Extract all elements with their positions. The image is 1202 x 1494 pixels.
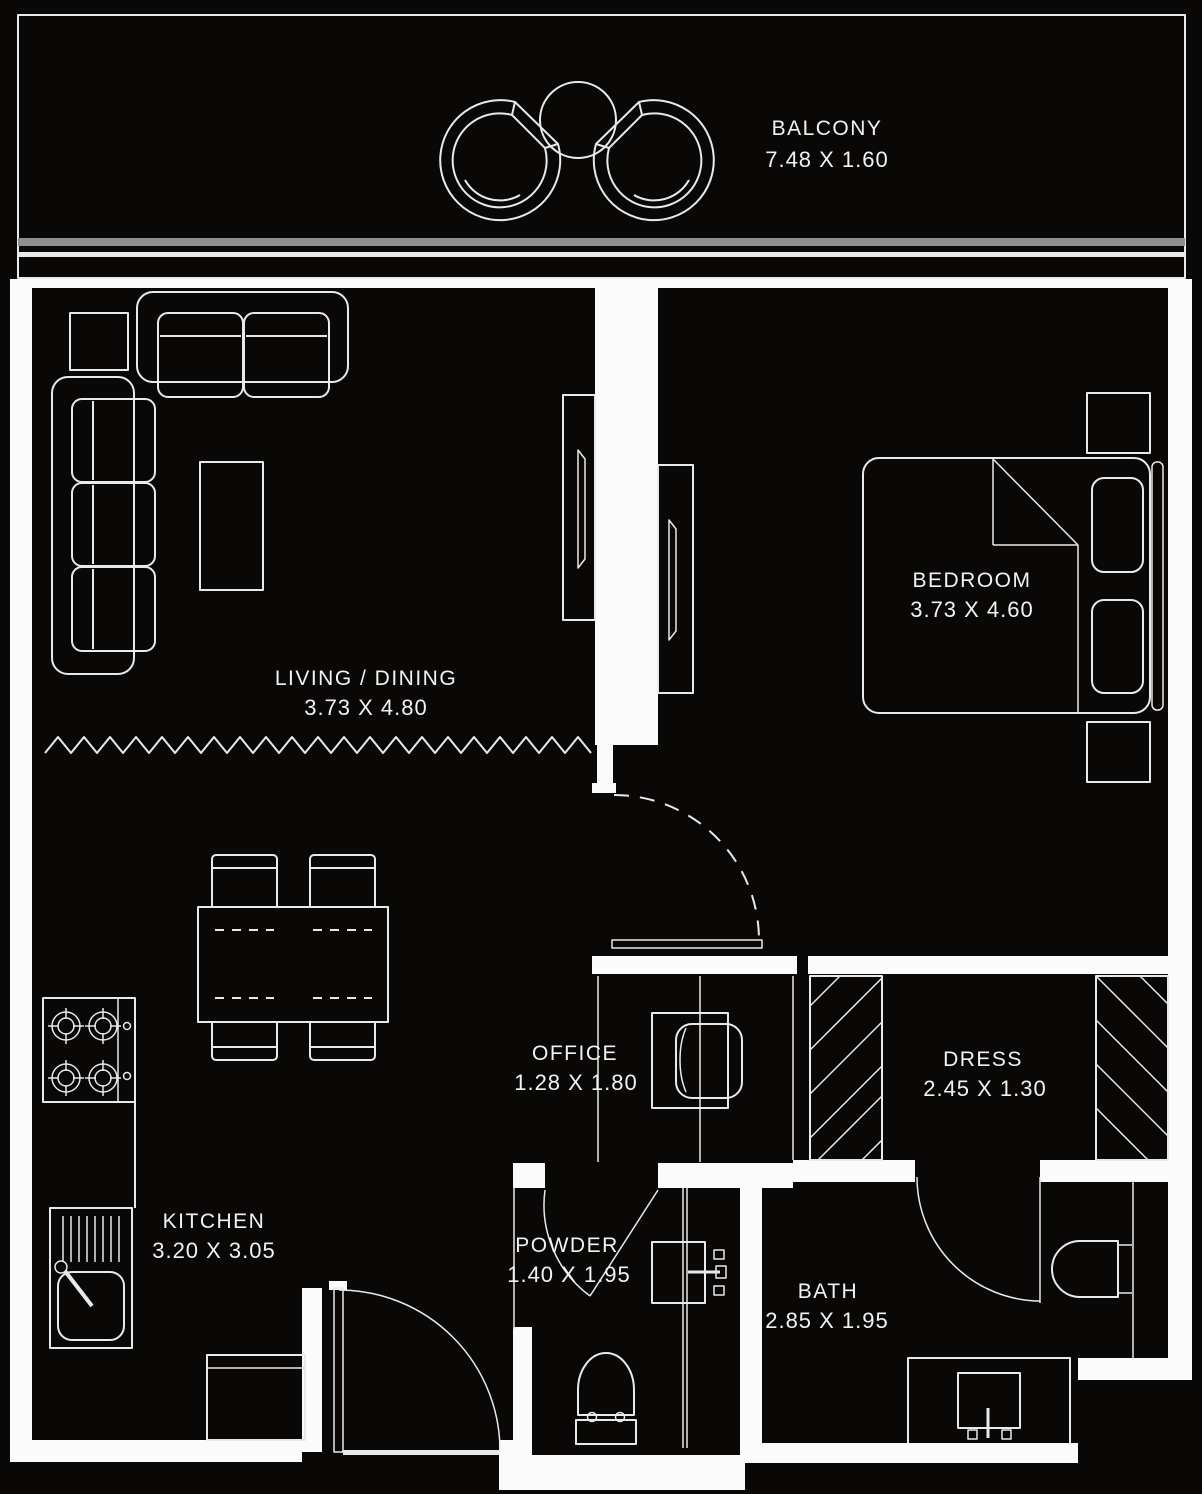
pillow-bottom	[1092, 600, 1143, 693]
coffee-table	[200, 462, 263, 590]
bath-dims: 2.85 X 1.95	[765, 1308, 889, 1333]
burner	[85, 1008, 121, 1044]
stove	[43, 998, 135, 1102]
floor-break-line	[45, 737, 591, 753]
balcony-dims: 7.48 X 1.60	[765, 147, 889, 172]
bath-toilet	[1052, 1241, 1132, 1297]
bath-bottom-wall	[740, 1443, 1078, 1463]
walls	[10, 279, 1192, 1490]
living-dims: 3.73 X 4.80	[304, 695, 428, 720]
balcony-sill-line	[18, 252, 1185, 257]
tv-living	[578, 450, 585, 568]
sofa-left-cushions	[72, 399, 155, 651]
office-dims: 1.28 X 1.80	[514, 1070, 638, 1095]
bedroom-door-jamb	[592, 783, 616, 793]
office-zone	[652, 1013, 742, 1108]
powder-top-wall-b	[658, 1163, 793, 1188]
faucet-lever	[65, 1271, 92, 1306]
wardrobe-left	[810, 976, 882, 1160]
bedroom-door-panel	[612, 940, 762, 948]
center-wall-stub	[597, 745, 613, 785]
side-table	[70, 313, 128, 370]
bath-door-swing	[917, 1177, 1040, 1301]
kitchen-sink	[50, 1208, 132, 1348]
bedroom-dims: 3.73 X 4.60	[910, 597, 1034, 622]
powder-washbasin	[652, 1242, 726, 1303]
powder-toilet	[576, 1353, 636, 1444]
kitchen-dims: 3.20 X 3.05	[152, 1238, 276, 1263]
balcony-label: BALCONY	[772, 117, 883, 140]
hall-top-wall-left	[592, 956, 797, 974]
fridge-cabinet	[207, 1355, 305, 1440]
powder-zone	[544, 1190, 726, 1444]
bath-left-wall	[740, 1188, 762, 1463]
dress-label: DRESS	[943, 1048, 1023, 1071]
pillow-top	[1092, 478, 1143, 572]
sofa-top-cushions	[158, 313, 329, 397]
floor-plan: BALCONY 7.48 X 1.60 LIVING / DINING 3.73…	[0, 0, 1202, 1494]
bath-label: BATH	[798, 1280, 858, 1303]
bedroom-door-swing	[614, 795, 759, 940]
burner	[48, 1008, 84, 1044]
powder-bottom-wall	[499, 1455, 745, 1490]
nightstand-bottom	[1087, 722, 1150, 782]
office-chair	[676, 1024, 742, 1098]
entrance-door-swing	[339, 1290, 500, 1452]
floor-plan-canvas: BALCONY 7.48 X 1.60 LIVING / DINING 3.73…	[0, 0, 1202, 1494]
headboard	[1152, 462, 1163, 710]
hall-top-wall-right	[808, 956, 1168, 974]
balcony-zone	[18, 15, 1185, 278]
right-wall	[1168, 279, 1192, 1380]
tv-unit-living	[563, 395, 595, 620]
center-wall	[595, 279, 658, 745]
drainboard	[63, 1216, 119, 1262]
bath-vanity	[908, 1358, 1070, 1443]
bath-door	[917, 1177, 1040, 1303]
entrance-door-leaf	[334, 1288, 343, 1452]
bedroom-label: BEDROOM	[912, 569, 1031, 592]
bottom-left-wall	[10, 1440, 302, 1462]
kitchen-label: KITCHEN	[163, 1210, 266, 1233]
dining-set	[198, 855, 388, 1060]
burner	[85, 1060, 121, 1096]
living-label: LIVING / DINING	[275, 667, 457, 690]
lounge-chair-left	[440, 100, 560, 220]
dress-bottom-wall-b	[1040, 1160, 1168, 1182]
tv-bedroom	[669, 520, 676, 640]
office-label: OFFICE	[532, 1042, 618, 1065]
dress-dims: 2.45 X 1.30	[923, 1076, 1047, 1101]
office-desk	[652, 1013, 728, 1108]
dress-bottom-wall-a	[793, 1160, 915, 1182]
tv-unit-bedroom	[658, 465, 693, 693]
bath-step-wall	[1078, 1358, 1192, 1380]
bath-zone	[908, 1177, 1132, 1443]
powder-left-wall	[513, 1327, 532, 1455]
powder-label: POWDER	[515, 1234, 619, 1257]
nightstand-top	[1087, 393, 1150, 453]
balcony-glass-rail	[18, 238, 1185, 246]
bedroom-zone	[612, 393, 1163, 948]
left-wall	[10, 279, 32, 1462]
powder-top-wall-a	[513, 1163, 545, 1188]
powder-dims: 1.40 X 1.95	[507, 1262, 631, 1287]
dining-table	[198, 907, 388, 1022]
lounge-chair-right	[594, 100, 714, 220]
wardrobe-right	[1096, 976, 1168, 1160]
bedroom-sliding-door	[612, 795, 762, 948]
burner	[48, 1060, 84, 1096]
entrance-door	[334, 1288, 500, 1452]
entry-threshold	[343, 1450, 499, 1455]
